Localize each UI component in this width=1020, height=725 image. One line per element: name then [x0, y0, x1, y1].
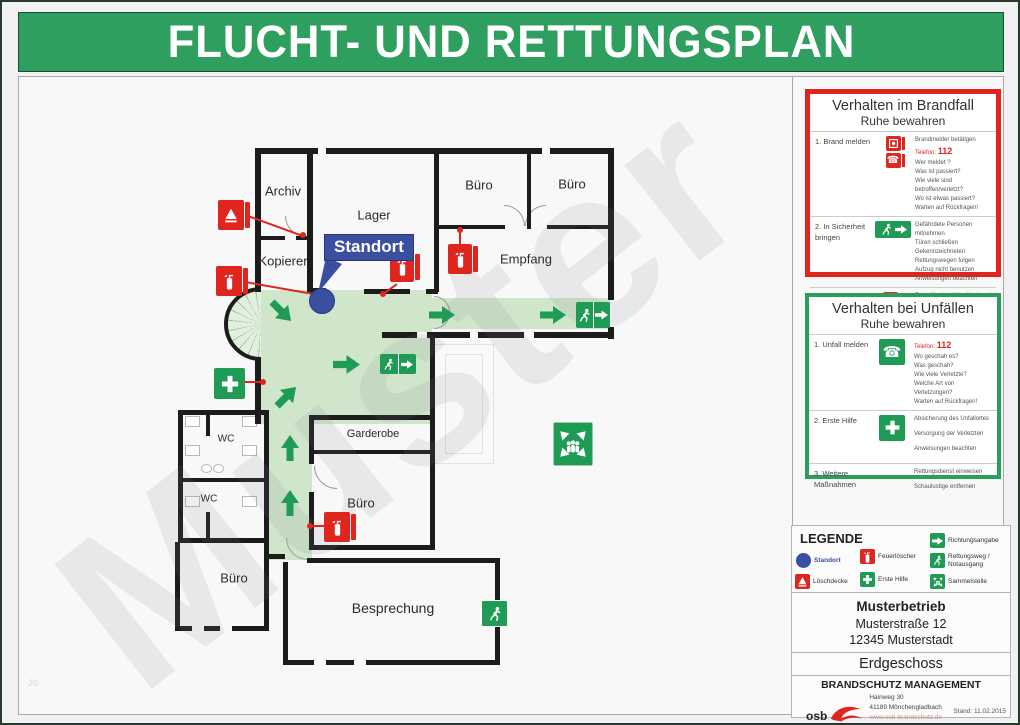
- room-label-kopierer: Kopierer: [258, 254, 307, 269]
- site-address: Musterbetrieb Musterstraße 12 12345 Must…: [792, 593, 1010, 648]
- legend-item-sammelstelle: Sammelstelle: [930, 574, 1000, 589]
- legend: LEGENDE Standort Löschdecke Feuerlöscher…: [791, 525, 1011, 593]
- extinguisher-icon: [223, 273, 236, 290]
- wall-window-gap: [354, 660, 366, 665]
- fire-blanket-icon: [223, 207, 239, 223]
- room-label-lager: Lager: [357, 208, 390, 223]
- loeschdecke-marker: [218, 200, 244, 230]
- wall-segment: [426, 289, 438, 294]
- wc-fixture: [242, 496, 257, 507]
- direction-arrow: [429, 306, 455, 324]
- marker-pointer-dot: [300, 232, 306, 238]
- accident-step-1: 1. Unfall melden ☎ Telefon: 112 Wo gesch…: [809, 334, 997, 410]
- room-label-archiv: Archiv: [265, 184, 301, 199]
- erste-hilfe-marker: [214, 368, 245, 399]
- wall-segment: [178, 410, 269, 415]
- wall-segment: [309, 545, 435, 550]
- floor-name: Erdgeschoss: [792, 652, 1010, 675]
- wall-window-gap: [417, 332, 427, 338]
- wall-segment: [178, 538, 269, 543]
- legend-item-loeschdecke: Löschdecke: [795, 574, 865, 589]
- room-label-wc-2: WC: [201, 494, 218, 505]
- flucht-rettungsplan-sheet: FLUCHT- UND RETTUNGSPLAN 20: [0, 0, 1020, 725]
- osb-logo: osb: [806, 703, 863, 723]
- accident-panel-title: Verhalten bei Unfällen: [809, 301, 997, 317]
- rescue-route-sign-icon: [875, 221, 911, 238]
- running-man-icon: [930, 553, 945, 568]
- wall-segment: [178, 478, 266, 482]
- company-street: Musterstraße 12: [792, 616, 1010, 632]
- wall-segment: [175, 542, 180, 630]
- direction-arrow-icon: [930, 533, 945, 548]
- legend-title: LEGENDE: [800, 531, 863, 546]
- exit-sign-east: [576, 302, 610, 328]
- wall-segment: [255, 236, 285, 240]
- extinguisher-icon: [396, 259, 409, 276]
- extinguisher-icon: [454, 251, 467, 268]
- marker-pointer-dot: [307, 523, 313, 529]
- wall-segment: [437, 225, 505, 229]
- accident-instructions-panel: Verhalten bei Unfällen Ruhe bewahren 1. …: [805, 293, 1001, 479]
- wall-segment: [547, 225, 610, 229]
- room-label-buero-1: Büro: [465, 178, 492, 193]
- feuerloescher-marker: [324, 512, 350, 542]
- wall-segment: [264, 410, 269, 542]
- wall-segment: [527, 148, 531, 229]
- legend-item-erste-hilfe: Erste Hilfe: [860, 572, 908, 587]
- wall-segment: [206, 512, 210, 538]
- wc-fixture: [185, 416, 200, 427]
- wall-window-gap: [220, 626, 232, 631]
- plan-title-banner: FLUCHT- UND RETTUNGSPLAN: [18, 12, 1004, 72]
- feuerloescher-marker: [448, 244, 472, 274]
- sammelstelle-sign: [552, 421, 594, 467]
- wall-segment: [309, 415, 434, 420]
- room-label-buero-4: Büro: [220, 571, 247, 586]
- exit-sign-hall: [380, 354, 416, 374]
- marker-pointer-dot: [380, 291, 386, 297]
- first-aid-cross-icon: [860, 572, 875, 587]
- wall-segment: [265, 554, 285, 559]
- wall-segment: [307, 148, 313, 292]
- page-number: 20: [28, 678, 38, 688]
- wc-sink: [201, 464, 212, 473]
- fire-step-2: 2. In Sicherheit bringen Gefährdete Pers…: [810, 216, 996, 287]
- direction-arrow: [333, 355, 360, 374]
- accident-step-3: 3. Weitere Maßnahmen Rettungsdienst einw…: [809, 463, 997, 501]
- legend-item-standort: Standort: [796, 553, 866, 568]
- standort-label: Standort: [324, 234, 414, 261]
- wc-sink: [213, 464, 224, 473]
- direction-arrow: [540, 306, 566, 324]
- first-aid-cross-icon: [879, 415, 905, 441]
- wall-window-gap: [470, 332, 478, 338]
- room-label-besprechung: Besprechung: [352, 600, 435, 616]
- revision-date: Stand: 11.02.2015: [953, 708, 1006, 715]
- running-man-icon: [380, 354, 398, 374]
- info-block: Musterbetrieb Musterstraße 12 12345 Must…: [791, 593, 1011, 718]
- spiral-staircase: [224, 287, 261, 361]
- page-title: FLUCHT- UND RETTUNGSPLAN: [167, 16, 855, 68]
- wall-segment: [430, 332, 435, 550]
- accident-panel-subtitle: Ruhe bewahren: [809, 317, 997, 331]
- wall-segment: [309, 450, 314, 464]
- assembly-point-icon: [556, 427, 590, 461]
- standort-icon: [796, 553, 811, 568]
- wall-window-gap: [314, 660, 326, 665]
- wall-segment: [283, 562, 288, 664]
- company-city: 12345 Musterstadt: [792, 632, 1010, 648]
- marker-pointer-dot: [457, 227, 463, 233]
- legend-item-richtungsangabe: Richtungsangabe: [930, 533, 1000, 548]
- room-label-empfang: Empfang: [500, 252, 552, 267]
- org-name: BRANDSCHUTZ MANAGEMENT: [792, 675, 1010, 691]
- feuerloescher-marker: [216, 266, 242, 296]
- phone-icon: ☎: [886, 153, 901, 168]
- extinguisher-icon: [331, 519, 344, 536]
- wall-segment: [434, 148, 439, 292]
- fire-alarm-button-icon: [886, 136, 901, 151]
- wall-window-gap: [524, 332, 534, 338]
- accident-step-2: 2. Erste Hilfe Absicherung des Unfallort…: [809, 410, 997, 463]
- first-aid-cross-icon: [220, 374, 240, 394]
- standort-marker: [309, 288, 335, 314]
- fire-panel-subtitle: Ruhe bewahren: [810, 114, 996, 128]
- fire-instructions-panel: Verhalten im Brandfall Ruhe bewahren 1. …: [805, 89, 1001, 277]
- wall-segment: [307, 558, 500, 563]
- emergency-phone-icon: ☎: [879, 339, 905, 365]
- wall-window-gap: [318, 148, 326, 154]
- fire-panel-title: Verhalten im Brandfall: [810, 98, 996, 114]
- wc-fixture: [242, 445, 257, 456]
- wall-segment: [309, 415, 314, 454]
- wall-segment: [309, 450, 435, 454]
- assembly-point-icon: [930, 574, 945, 589]
- terrace-outline-inner: [445, 354, 483, 454]
- exit-arrow-icon: [593, 302, 611, 328]
- wall-window-gap: [192, 626, 204, 631]
- wall-segment: [206, 410, 210, 436]
- room-label-wc-1: WC: [218, 434, 235, 445]
- room-label-buero-3: Büro: [347, 496, 374, 511]
- wc-fixture: [185, 445, 200, 456]
- org-web: www.osb-brandschutz.de: [869, 713, 959, 723]
- wall-window-gap: [542, 148, 550, 154]
- wall-segment: [608, 148, 614, 300]
- org-address2: 41189 Mönchengladbach: [869, 703, 959, 713]
- legend-item-rettungsweg: Rettungsweg / Notausgang: [930, 553, 1000, 568]
- room-label-buero-2: Büro: [558, 177, 585, 192]
- wc-fixture: [185, 496, 200, 507]
- direction-arrow: [281, 490, 299, 516]
- extinguisher-icon: [860, 549, 875, 564]
- exit-sign-besprechung: [481, 600, 508, 627]
- marker-pointer-dot: [260, 379, 266, 385]
- exit-arrow-icon: [398, 354, 417, 374]
- fire-step-1: 1. Brand melden ☎ Brandmelder betätigen …: [810, 131, 996, 216]
- escape-route-corridor-east: [370, 298, 610, 329]
- wall-segment: [178, 410, 183, 542]
- org-address1: Hainweg 30: [869, 693, 959, 703]
- legend-item-feuerloescher: Feuerlöscher: [860, 549, 930, 564]
- wall-segment: [309, 492, 314, 549]
- running-man-icon: [576, 302, 593, 328]
- fire-blanket-icon: [795, 574, 810, 589]
- company-name: Musterbetrieb: [792, 598, 1010, 616]
- direction-arrow: [281, 435, 299, 461]
- running-man-icon: [487, 606, 503, 622]
- osb-swoosh-icon: [829, 703, 863, 723]
- room-label-garderobe: Garderobe: [347, 428, 400, 440]
